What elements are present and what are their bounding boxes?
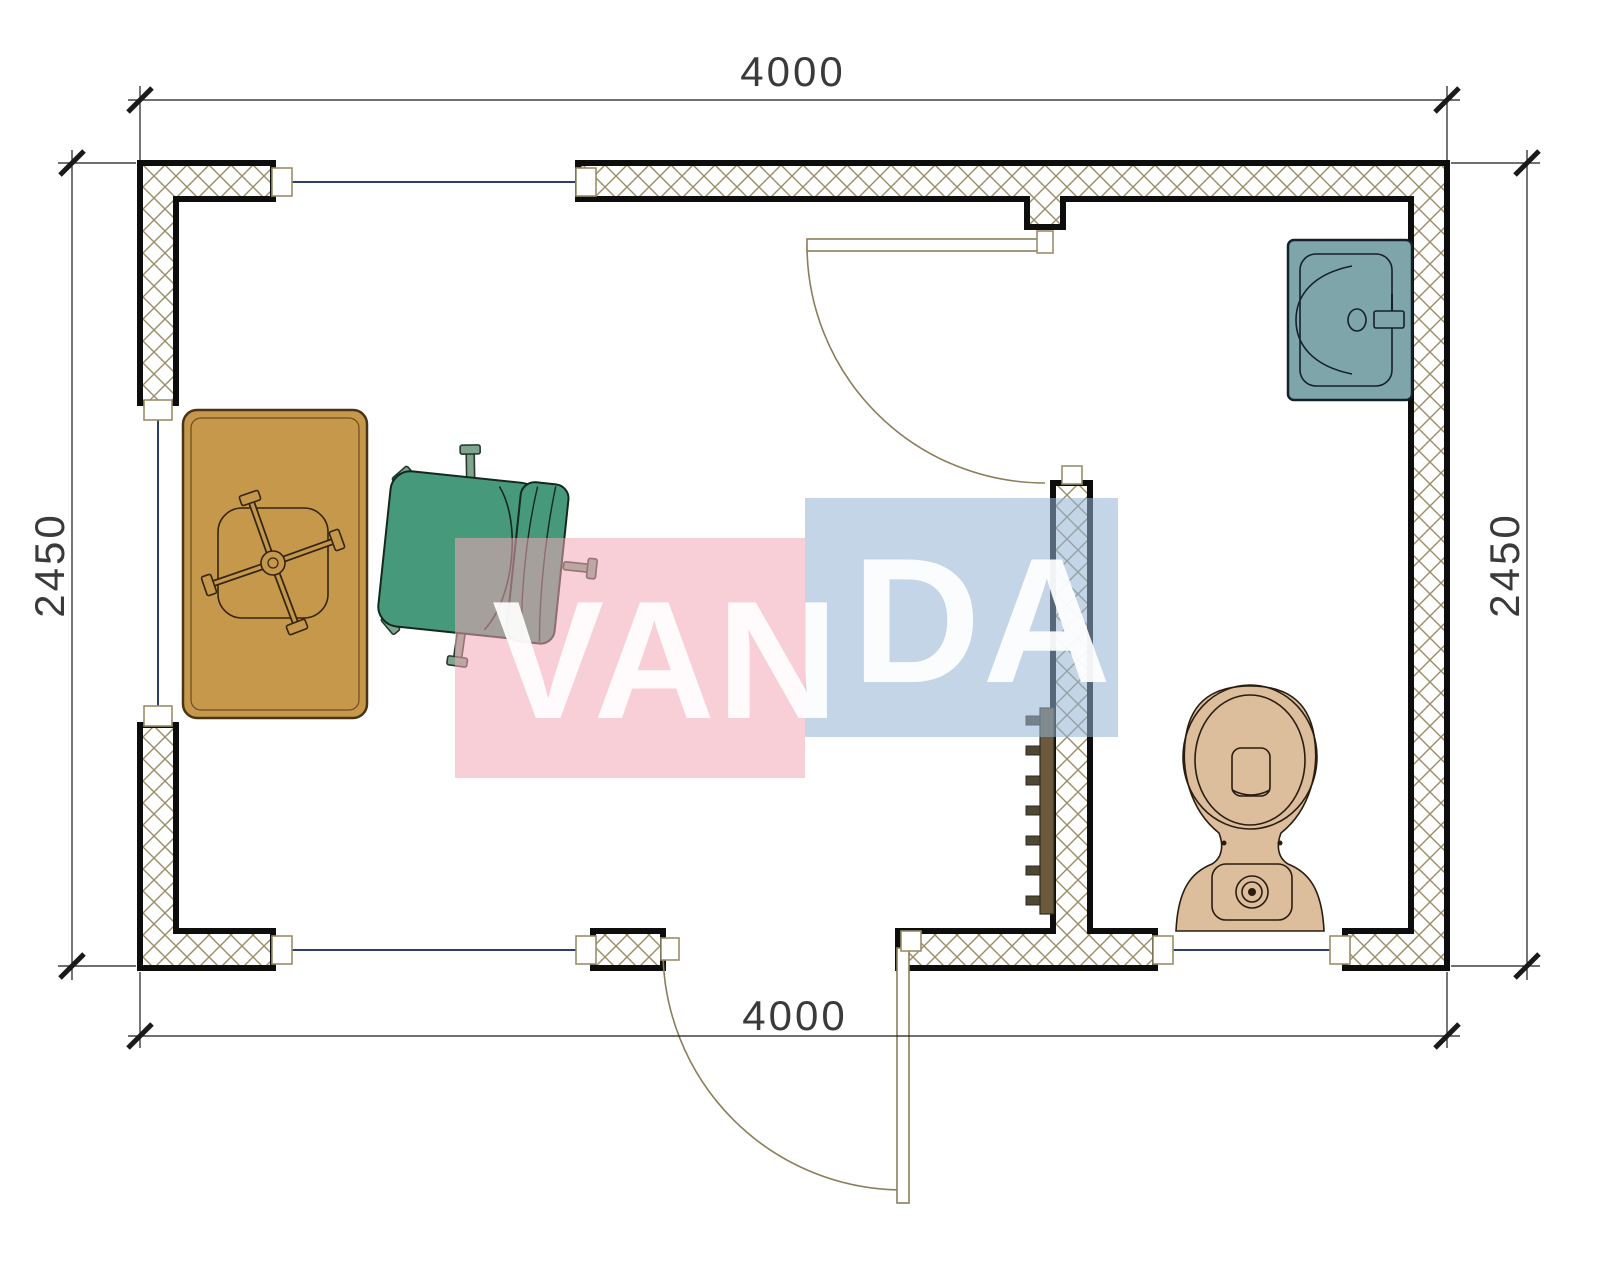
- washbasin: [1288, 240, 1412, 400]
- floor-plan-canvas: 4000 4000 2450 2450 VAN DA: [0, 0, 1600, 1280]
- coat-hook: [1026, 896, 1040, 905]
- toilet: [1176, 685, 1324, 931]
- dimension-bottom-text: 4000: [742, 992, 847, 1039]
- coat-hook: [1026, 806, 1040, 815]
- window-jamb: [144, 706, 172, 726]
- desk: [183, 410, 367, 718]
- wall-top-left-L: [140, 163, 273, 403]
- door-jamb: [661, 938, 679, 960]
- coat-hook: [1026, 866, 1040, 875]
- coat-hook: [1026, 776, 1040, 785]
- entrance-door: [661, 931, 921, 1203]
- door-jamb: [1062, 466, 1082, 484]
- sink-faucet: [1374, 311, 1404, 328]
- door-jamb: [1037, 231, 1053, 253]
- dimension-left-text: 2450: [26, 512, 73, 617]
- wall-bottom-left-L: [140, 725, 273, 968]
- wall-bottom-pier: [593, 931, 663, 968]
- dimension-right-text: 2450: [1481, 512, 1528, 617]
- dimension-top: [128, 86, 1460, 160]
- window-jamb: [272, 168, 292, 196]
- window-jamb: [576, 936, 596, 964]
- window-jamb: [1330, 936, 1350, 964]
- window-jamb: [1153, 936, 1173, 964]
- toilet-flush-button: [1248, 888, 1256, 896]
- dimension-top-text: 4000: [740, 48, 845, 95]
- sink-drain: [1348, 309, 1366, 331]
- coat-rail: [1040, 708, 1054, 914]
- door-swing-arc: [663, 950, 903, 1190]
- office-chair: [373, 436, 608, 680]
- window-jamb: [144, 400, 172, 420]
- coat-hook: [1026, 716, 1040, 725]
- toilet-bolt: [1222, 841, 1227, 846]
- window-jamb: [576, 168, 596, 196]
- floor-plan-drawing: 4000 4000 2450 2450: [0, 0, 1600, 1280]
- coat-hooks: [1026, 708, 1054, 914]
- coat-hook: [1026, 746, 1040, 755]
- toilet-bolt: [1278, 841, 1283, 846]
- door-swing-arc: [807, 245, 1045, 483]
- door-jamb: [901, 931, 921, 951]
- bathroom-door: [807, 231, 1082, 484]
- toilet-flush-valve: [1232, 748, 1270, 796]
- door-leaf: [807, 239, 1045, 251]
- window-jamb: [272, 936, 292, 964]
- coat-hook: [1026, 836, 1040, 845]
- door-leaf: [897, 948, 909, 1203]
